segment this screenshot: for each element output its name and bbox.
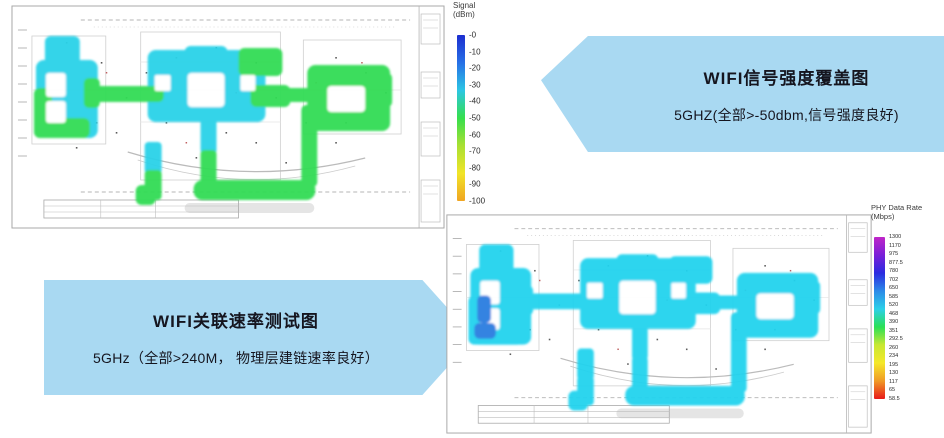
signal-callout-subtitle: 5GHZ(全部>-50dbm,信号强度良好) <box>674 105 899 125</box>
colorbar-tick-label: 351 <box>889 328 898 334</box>
signal-callout-title: WIFI信号强度覆盖图 <box>704 64 870 89</box>
colorbar-tick-label: 195 <box>889 362 898 368</box>
colorbar-tick-label: -0 <box>469 31 476 40</box>
colorbar-tick-label: 520 <box>889 302 898 308</box>
colorbar-tick-label: -90 <box>469 180 481 189</box>
colorbar-tick-label: 780 <box>889 268 898 274</box>
colorbar-tick-label: -100 <box>469 197 485 206</box>
signal-colorbar: Signal (dBm) -0-10-20-30-40-50-60-70-80-… <box>450 0 512 222</box>
wifi-test-figure: Signal (dBm) -0-10-20-30-40-50-60-70-80-… <box>0 0 944 438</box>
colorbar-tick-label: -60 <box>469 130 481 139</box>
signal-coverage-floorplan <box>6 2 450 230</box>
colorbar-tick-label: -80 <box>469 163 481 172</box>
signal-colorbar-title: Signal (dBm) <box>453 1 475 19</box>
colorbar-tick-label: -40 <box>469 97 481 106</box>
rate-callout-subtitle: 5GHz（全部>240M， 物理层建链速率良好） <box>93 348 379 368</box>
rate-callout-banner: WIFI关联速率测试图 5GHz（全部>240M， 物理层建链速率良好） <box>44 280 474 395</box>
colorbar-tick-label: 468 <box>889 311 898 317</box>
colorbar-tick-label: 877.5 <box>889 260 903 266</box>
rate-colorbar: PHY Data Rate (Mbps) 13001170975877.5780… <box>868 203 944 438</box>
colorbar-tick-label: 1300 <box>889 234 901 240</box>
colorbar-tick-label: 117 <box>889 379 898 385</box>
colorbar-tick-label: 650 <box>889 285 898 291</box>
colorbar-tick-label: -70 <box>469 147 481 156</box>
signal-callout-banner: WIFI信号强度覆盖图 5GHZ(全部>-50dbm,信号强度良好) <box>541 36 944 152</box>
rate-colorbar-title: PHY Data Rate (Mbps) <box>871 204 922 221</box>
colorbar-tick-label: 975 <box>889 251 898 257</box>
rate-test-floorplan <box>441 211 877 435</box>
rate-colorbar-gradient <box>874 237 885 399</box>
colorbar-tick-label: 702 <box>889 277 898 283</box>
colorbar-tick-label: 585 <box>889 294 898 300</box>
colorbar-tick-label: 65 <box>889 387 895 393</box>
colorbar-tick-label: 234 <box>889 353 898 359</box>
colorbar-tick-label: -10 <box>469 47 481 56</box>
colorbar-tick-label: 390 <box>889 319 898 325</box>
rate-callout-title: WIFI关联速率测试图 <box>153 307 319 332</box>
colorbar-tick-label: 130 <box>889 370 898 376</box>
colorbar-tick-label: -30 <box>469 80 481 89</box>
colorbar-tick-label: 1170 <box>889 243 901 249</box>
colorbar-tick-label: 260 <box>889 345 898 351</box>
colorbar-tick-label: 58.5 <box>889 396 900 402</box>
colorbar-tick-label: -20 <box>469 64 481 73</box>
signal-colorbar-gradient <box>457 35 465 201</box>
colorbar-tick-label: 292.5 <box>889 336 903 342</box>
colorbar-tick-label: -50 <box>469 114 481 123</box>
